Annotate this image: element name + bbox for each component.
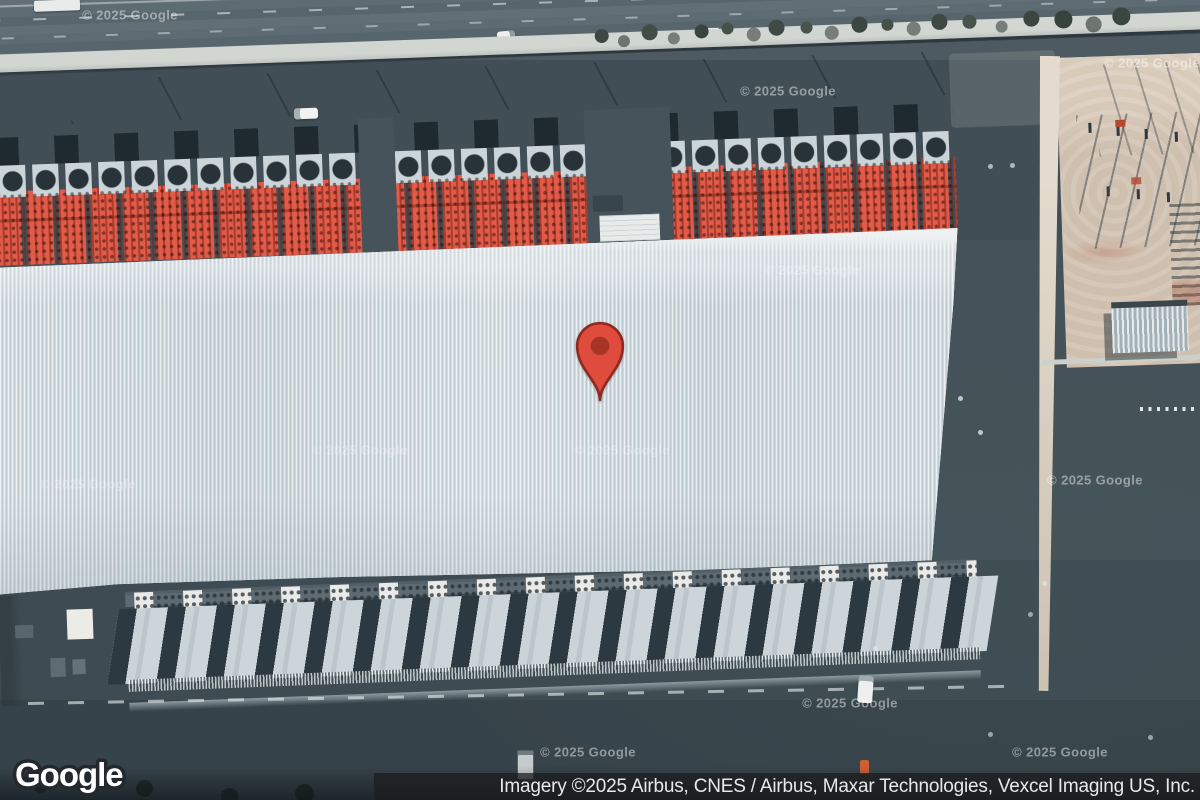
white-van (857, 676, 874, 704)
rooftop-unit (15, 625, 33, 639)
loading-dock-row-south (125, 559, 981, 705)
barrier-dots (1140, 407, 1198, 411)
google-watermark: © 2025 Google (1012, 745, 1108, 760)
substation-equipment (1169, 201, 1200, 306)
attribution-bar: Imagery ©2025 Airbus, CNES / Airbus, Max… (374, 773, 1200, 800)
bush-blobs (0, 0, 9, 9)
attribution-text: Imagery ©2025 Airbus, CNES / Airbus, Max… (499, 776, 1195, 798)
map-viewport[interactable]: © 2025 Google © 2025 Google © 2025 Googl… (0, 0, 1200, 800)
transmission-structure-shadows (1096, 61, 1200, 157)
pin-inner-dot (591, 337, 610, 356)
rooftop-unit (50, 658, 66, 678)
google-logo-text[interactable]: Google (15, 756, 123, 793)
outbuilding (1111, 300, 1189, 354)
pin-icon[interactable] (577, 323, 623, 401)
google-watermark: © 2025 Google (802, 696, 898, 711)
google-watermark: © 2025 Google (1047, 473, 1143, 488)
warehouse-roof (0, 222, 985, 602)
gravel-strip (1033, 56, 1060, 691)
truck-trailer (34, 0, 80, 12)
utility-box (593, 195, 624, 212)
transmission-towers (1088, 123, 1091, 133)
map-pin[interactable] (574, 320, 626, 403)
white-utility-building (599, 214, 660, 242)
google-logo[interactable]: Google (8, 750, 168, 798)
rooftop-unit (72, 659, 86, 674)
equipment-gap (358, 117, 399, 258)
substation-red-equipment (1115, 120, 1125, 127)
rooftop-unit (67, 609, 94, 640)
google-watermark: © 2025 Google (540, 745, 636, 760)
